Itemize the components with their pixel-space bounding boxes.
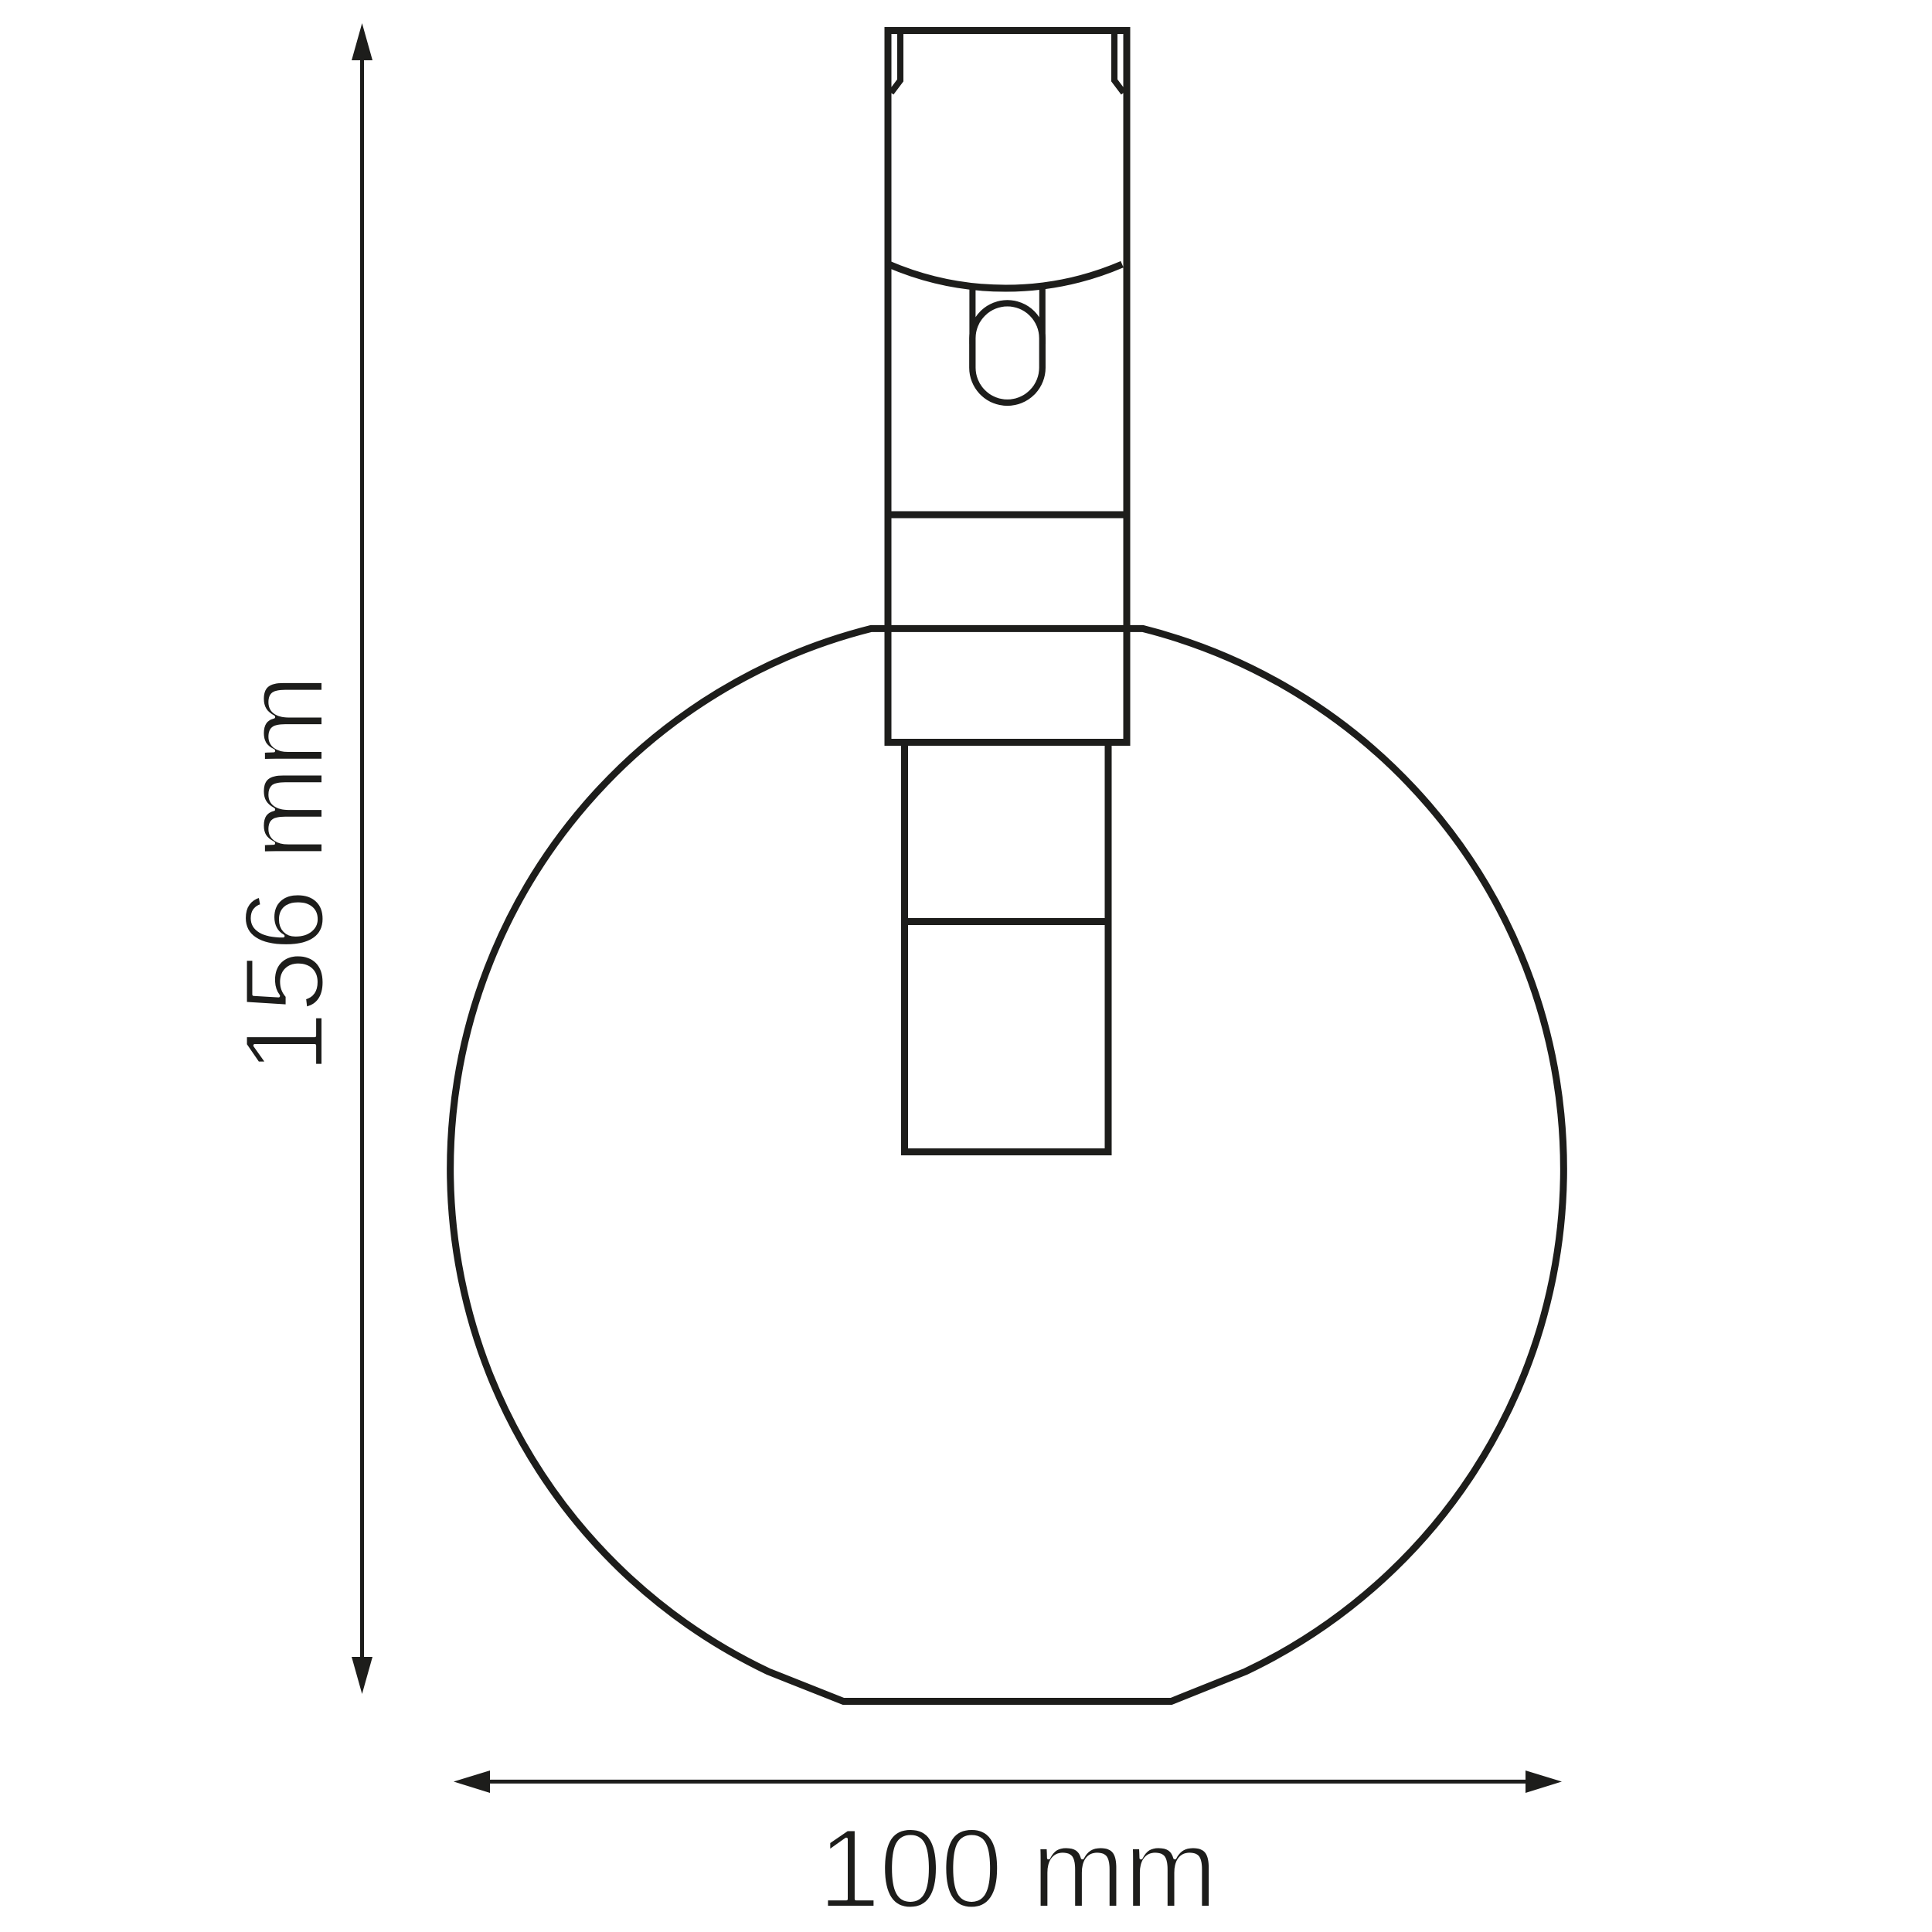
svg-text:100 mm: 100 mm	[818, 1805, 1216, 1931]
svg-text:156 mm: 156 mm	[221, 675, 347, 1073]
